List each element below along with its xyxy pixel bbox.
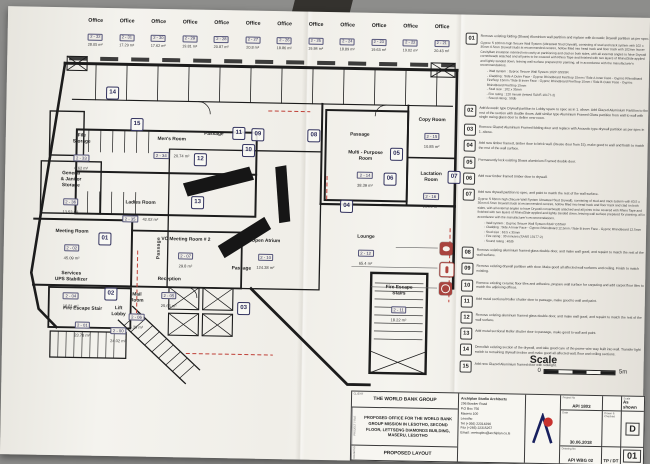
note-item: 03Remove Glazed Aluminium Framed folding… bbox=[464, 124, 648, 139]
note-marker: 01 bbox=[98, 232, 111, 245]
room-label-fire-escape-stairs: Fire Escape Stairs2 - 1118.22 m² bbox=[385, 285, 413, 322]
office-label: Office2 - 2219.02 m² bbox=[394, 23, 426, 60]
drawn-checked-value: TP / DT bbox=[603, 458, 618, 463]
scale-block: Scale 0 5m bbox=[530, 354, 640, 376]
note-number: 13 bbox=[460, 328, 472, 340]
note-item: 04Add new timber framed, timber door to … bbox=[464, 140, 648, 155]
floor-plan: Passage Passage Passage Passage File Sto… bbox=[17, 52, 468, 412]
note-marker: 15 bbox=[130, 118, 143, 131]
room-label-lounge: Lounge2 - 1265.4 m² bbox=[357, 235, 375, 266]
room-label-services-ups: Services UPS Stabilizer2 - 0416.81 m² bbox=[54, 271, 87, 309]
note-marker: 12 bbox=[194, 153, 207, 166]
note-text: Remove existing drywall partition with d… bbox=[476, 264, 645, 277]
scale-bar bbox=[544, 369, 616, 375]
room-label-open-atrium: Open Atrium2 - 10124.38 m² bbox=[251, 239, 280, 271]
office-label: Office2 - 2418.89 m² bbox=[331, 22, 363, 59]
title-block-left: CLIENTTHE WORLD BANK GROUP PROJECT TITLE… bbox=[351, 392, 459, 462]
note-item: 13Add metal sectional Roller shutter doo… bbox=[460, 328, 644, 343]
client-label: CLIENT bbox=[354, 393, 364, 396]
note-text: Remove existing aluminium framed glass d… bbox=[477, 248, 646, 261]
note-marker: 06 bbox=[383, 173, 396, 186]
office-label: Office2 - 3228.05 m² bbox=[79, 17, 111, 54]
note-text: Add new timber framed, timber door to br… bbox=[479, 141, 648, 154]
hose-reel-glyph bbox=[441, 284, 450, 293]
note-number: 10 bbox=[461, 279, 473, 291]
note-item: 11Add metal sectional Roller shutter doo… bbox=[461, 295, 645, 310]
client-name: THE WORLD BANK GROUP bbox=[352, 392, 458, 409]
drawn-checked-label: Drawn & Checked bbox=[604, 412, 621, 418]
note-text: Add new timber framed timber door to dry… bbox=[478, 174, 547, 180]
drawing-sheet: Office2 - 3228.05 m² Office2 - 3117.29 m… bbox=[0, 6, 650, 464]
note-bullets: - Wall system : Gyproc Secure Wall Syste… bbox=[484, 221, 646, 246]
note-item: 08Remove existing aluminium framed glass… bbox=[462, 247, 646, 262]
note-text: Permanently lock existing Stowa aluminiu… bbox=[478, 157, 576, 164]
office-label: Office2 - 2820.87 m² bbox=[205, 20, 237, 57]
scale-zero: 0 bbox=[538, 368, 541, 374]
hose-reel-icon bbox=[439, 282, 452, 295]
project-side-label: PROJECT TITLE bbox=[351, 408, 359, 445]
architect-name: Archiplan Studio Architects bbox=[461, 396, 507, 401]
room-label-fire-escape-stair: Fire Escape Stair2 - 0123.78 m² bbox=[63, 306, 102, 338]
office-label: Office2 - 2919.81 m² bbox=[174, 19, 206, 56]
fire-alarm-icon bbox=[440, 242, 453, 255]
note-text: Add metal sectional Roller shutter door … bbox=[476, 297, 597, 304]
note-item: 07Add new drywall partition to spec, and… bbox=[462, 189, 647, 246]
note-item: 05Permanently lock existing Stowa alumin… bbox=[463, 156, 647, 171]
project-no-value: API 1803 bbox=[572, 404, 590, 409]
note-number: 05 bbox=[463, 156, 475, 168]
architect-address: Archiplan Studio Architects 296 Bowker R… bbox=[458, 393, 526, 462]
note-text: Remove existing ceramic floor tiles and … bbox=[476, 280, 645, 293]
note-item: 06Add new timber framed timber door to d… bbox=[463, 172, 647, 187]
title-block-fields: Project NoAPI 1803 ScaleAs shown Date30.… bbox=[560, 395, 644, 464]
alarm-glyph bbox=[443, 246, 450, 251]
architect-logo bbox=[525, 395, 561, 464]
room-label-mail-room: Mail Room2 - 066.39 m² bbox=[128, 292, 144, 329]
room-label-multi-purpose-room: Multi - Purpose Room2 - 1438.39 m² bbox=[348, 150, 383, 188]
date-value: 30.06.2018 bbox=[570, 440, 592, 445]
office-label: Office2 - 2120.43 m² bbox=[426, 24, 458, 61]
note-marker: 03 bbox=[237, 302, 250, 315]
note-number: 11 bbox=[461, 295, 473, 307]
note-marker: 05 bbox=[390, 148, 403, 161]
passage-label: Passage bbox=[232, 266, 252, 272]
room-label-file-storage: File Storage2 - 336.62 m² bbox=[72, 133, 91, 170]
note-marker: 04 bbox=[340, 200, 353, 213]
note-text: Add Acoustic type Drywall partition to L… bbox=[479, 106, 648, 123]
scale-end: 5m bbox=[619, 369, 627, 375]
office-label: Office2 - 2720.8 m² bbox=[237, 20, 269, 57]
note-number: 01 bbox=[466, 33, 478, 45]
note-bullets: - Wall system : Gyproc Secure Wall Syste… bbox=[487, 69, 650, 103]
drawing-title: PROPOSED LAYOUT bbox=[358, 446, 457, 462]
date-label: Date bbox=[562, 411, 568, 414]
note-item: 01Remove existing folding (Stowa) Alumin… bbox=[465, 33, 650, 104]
note-text: Remove existing aluminum framed glass do… bbox=[475, 313, 644, 326]
note-number: 09 bbox=[461, 263, 473, 275]
office-label: Office2 - 3117.29 m² bbox=[111, 18, 143, 55]
office-label: Office2 - 2519.84 m² bbox=[300, 22, 332, 59]
passage-label: Passage bbox=[204, 132, 224, 138]
archiplan-logo-icon bbox=[528, 413, 557, 446]
title-block: CLIENTTHE WORLD BANK GROUP PROJECT TITLE… bbox=[350, 391, 645, 464]
note-marker: 02 bbox=[104, 287, 117, 300]
photo-of-drawing: Office2 - 3228.05 m² Office2 - 3117.29 m… bbox=[0, 0, 650, 464]
fire-extinguisher-icon bbox=[439, 262, 454, 277]
room-label-lactation-room: Lactation Room2 - 1610.24 m² bbox=[420, 172, 442, 209]
note-number: 14 bbox=[460, 344, 472, 356]
project-no-label: Project No bbox=[563, 396, 576, 399]
room-label-reception: Reception2 - 0525.66 m² bbox=[157, 277, 181, 308]
note-number: 06 bbox=[463, 172, 475, 184]
office-label: Office2 - 3017.62 m² bbox=[142, 19, 174, 56]
note-number: 04 bbox=[464, 140, 476, 152]
room-label-lift-lobby: Lift Lobby2 - 0024.02 m² bbox=[110, 306, 126, 343]
note-item: 02Add Acoustic type Drywall partition to… bbox=[464, 104, 648, 123]
drawing-no-value: API WBG 02 bbox=[568, 457, 593, 462]
revision-value: D bbox=[625, 423, 640, 436]
drawing-side-label: DRAWING bbox=[351, 446, 358, 460]
office-label: Office2 - 2319.63 m² bbox=[363, 23, 395, 60]
note-number: 12 bbox=[460, 312, 472, 324]
scale-field-label: Scale bbox=[624, 397, 631, 400]
note-marker: 10 bbox=[242, 144, 255, 157]
note-number: 08 bbox=[462, 247, 474, 259]
note-spec: Gyproc S 100mm high Secure Wall System (… bbox=[480, 41, 649, 71]
note-marker: 13 bbox=[191, 196, 204, 209]
room-label-copy-room: Copy Room2 - 1510.85 m² bbox=[418, 118, 445, 149]
note-number: 07 bbox=[463, 189, 475, 201]
scale-label: Scale bbox=[530, 354, 640, 368]
note-number: 02 bbox=[464, 104, 476, 116]
office-label: Office2 - 2618.86 m² bbox=[268, 21, 300, 58]
scale-field-value: As shown bbox=[623, 399, 643, 409]
room-label-mens-room: Men's Room 2 - 34 20.74 m² bbox=[153, 137, 189, 164]
notes-panel: 01Remove existing folding (Stowa) Alumin… bbox=[460, 33, 650, 372]
note-spec: Gyproc S 63mm high (Secure Wall System U… bbox=[477, 197, 646, 223]
note-item: 10Remove existing ceramic floor tiles an… bbox=[461, 279, 645, 294]
drawing-no-label: Drawing No bbox=[562, 447, 576, 450]
note-number: 03 bbox=[464, 124, 476, 136]
room-label-ladies-room: Ladies Room 2 - 35 42.02 m² bbox=[122, 200, 158, 227]
note-text: Remove Glazed Aluminium Framed folding d… bbox=[479, 125, 648, 138]
note-marker: 11 bbox=[232, 127, 245, 140]
room-label-meeting-room: Meeting Room2 - 0245.09 m² bbox=[55, 229, 89, 261]
room-label-vc-meeting-room: VC Meeting Room # 22 - 0729.8 m² bbox=[161, 237, 211, 269]
note-item: 09Remove existing drywall partition with… bbox=[461, 263, 645, 278]
room-label-general-janitor-storage: General & Janitor Storage2 - 3613.53 m² bbox=[60, 171, 82, 214]
note-marker: 07 bbox=[447, 171, 460, 184]
note-item: 12Remove existing aluminum framed glass … bbox=[460, 312, 644, 327]
passage-label: Passage bbox=[350, 132, 370, 138]
note-number: 15 bbox=[460, 360, 472, 372]
architect-contact: 296 Bowker Road P.O Box 756 Maseru 100 L… bbox=[460, 401, 523, 437]
sheet-number-value: 01 bbox=[623, 450, 641, 463]
note-marker: 09 bbox=[251, 128, 264, 141]
project-title: PROPOSED OFFICE FOR THE WORLD BANK GROUP… bbox=[358, 408, 458, 447]
note-marker: 14 bbox=[106, 86, 119, 99]
note-marker: 08 bbox=[307, 129, 320, 142]
extinguisher-glyph bbox=[445, 266, 449, 273]
note-text: Add metal sectional Roller shutter door … bbox=[475, 329, 596, 336]
